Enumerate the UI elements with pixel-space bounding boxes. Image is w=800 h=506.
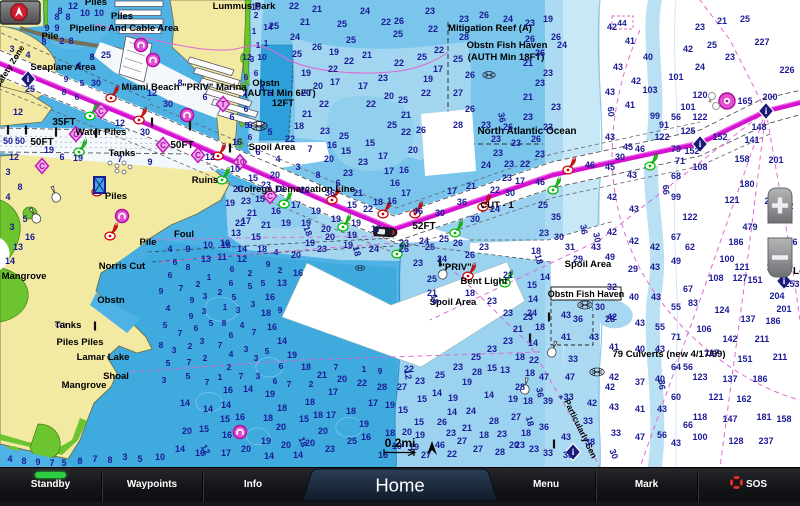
svg-text:17: 17 [368, 398, 378, 408]
svg-text:18: 18 [294, 121, 304, 131]
svg-text:4: 4 [167, 244, 172, 254]
svg-text:24: 24 [360, 6, 370, 16]
svg-text:22: 22 [434, 45, 444, 55]
svg-text:23: 23 [425, 6, 435, 16]
svg-text:9: 9 [44, 23, 49, 33]
svg-text:1: 1 [218, 372, 223, 382]
svg-text:16: 16 [267, 322, 277, 332]
svg-text:8: 8 [159, 340, 164, 350]
svg-text:23: 23 [523, 312, 533, 322]
svg-text:68: 68 [671, 171, 681, 181]
svg-text:20: 20 [408, 145, 418, 155]
svg-text:42: 42 [607, 22, 617, 32]
svg-text:42: 42 [607, 227, 617, 237]
svg-text:5: 5 [163, 320, 168, 330]
svg-text:23: 23 [459, 14, 469, 24]
svg-text:32: 32 [607, 282, 617, 292]
svg-text:20: 20 [321, 224, 331, 234]
svg-text:60: 60 [606, 106, 617, 117]
svg-text:123: 123 [692, 372, 707, 382]
svg-text:118: 118 [693, 412, 708, 422]
svg-text:14: 14 [180, 398, 190, 408]
svg-text:46: 46 [635, 144, 645, 154]
svg-text:121: 121 [724, 195, 739, 205]
svg-text:14: 14 [221, 400, 231, 410]
svg-text:99: 99 [650, 111, 660, 121]
svg-text:50: 50 [15, 136, 25, 146]
svg-text:186: 186 [728, 237, 743, 247]
svg-text:16: 16 [232, 137, 242, 147]
svg-text:28: 28 [377, 382, 387, 392]
svg-text:6: 6 [260, 82, 265, 92]
svg-text:8: 8 [90, 52, 95, 62]
svg-text:19: 19 [415, 430, 425, 440]
svg-text:14: 14 [528, 294, 538, 304]
svg-text:42: 42 [605, 382, 615, 392]
svg-text:23: 23 [320, 126, 330, 136]
svg-text:186: 186 [752, 374, 767, 384]
svg-text:28: 28 [472, 367, 482, 377]
svg-text:5: 5 [137, 454, 142, 464]
svg-text:8: 8 [62, 87, 67, 97]
svg-text:122: 122 [682, 212, 697, 222]
svg-text:22: 22 [447, 449, 457, 459]
svg-text:5: 5 [245, 120, 250, 130]
svg-text:5: 5 [261, 278, 266, 288]
svg-text:40: 40 [643, 52, 653, 62]
svg-text:42: 42 [650, 242, 660, 252]
svg-text:12: 12 [147, 88, 157, 98]
svg-text:7: 7 [179, 283, 184, 293]
svg-text:12: 12 [13, 107, 23, 117]
svg-text:Piles: Piles [85, 0, 107, 8]
svg-text:19: 19 [44, 145, 54, 155]
svg-text:27: 27 [473, 444, 483, 454]
svg-text:C: C [160, 141, 166, 150]
svg-text:15: 15 [347, 200, 357, 210]
svg-text:8: 8 [177, 78, 182, 88]
svg-text:22: 22 [357, 378, 367, 388]
svg-text:17: 17 [328, 387, 338, 397]
svg-text:49: 49 [671, 256, 681, 266]
svg-text:4: 4 [240, 320, 245, 330]
svg-text:16: 16 [223, 385, 233, 395]
svg-text:12: 12 [237, 254, 247, 264]
svg-text:5: 5 [61, 458, 66, 467]
svg-text:4: 4 [229, 349, 234, 359]
svg-text:43: 43 [655, 344, 665, 354]
svg-text:21: 21 [466, 181, 476, 191]
svg-text:23: 23 [535, 149, 545, 159]
svg-text:3: 3 [202, 306, 207, 316]
svg-text:Pile: Pile [140, 237, 157, 248]
svg-text:18: 18 [346, 406, 356, 416]
svg-text:20: 20 [241, 444, 251, 454]
svg-text:23: 23 [415, 376, 425, 386]
svg-text:25: 25 [439, 234, 449, 244]
svg-text:2: 2 [218, 287, 223, 297]
svg-text:14: 14 [447, 407, 457, 417]
svg-text:23: 23 [504, 159, 514, 169]
svg-text:28: 28 [495, 447, 505, 457]
svg-text:31: 31 [565, 242, 575, 252]
svg-text:Mangrove: Mangrove [2, 271, 47, 282]
svg-text:Tanks: Tanks [55, 320, 82, 331]
svg-text:20: 20 [233, 184, 243, 194]
svg-text:43: 43 [561, 310, 571, 320]
svg-text:26: 26 [465, 250, 475, 260]
svg-text:25: 25 [471, 352, 481, 362]
svg-text:23: 23 [358, 157, 368, 167]
svg-text:43: 43 [613, 62, 623, 72]
svg-text:19: 19 [225, 198, 235, 208]
svg-text:201: 201 [776, 304, 791, 314]
svg-text:21: 21 [353, 188, 363, 198]
svg-text:23: 23 [446, 428, 456, 438]
svg-text:120: 120 [692, 90, 707, 100]
svg-text:8: 8 [17, 182, 22, 192]
svg-text:152: 152 [712, 132, 727, 142]
svg-text:9: 9 [190, 295, 195, 305]
svg-text:12: 12 [242, 52, 252, 62]
svg-text:35FT: 35FT [52, 117, 75, 128]
svg-text:12: 12 [205, 152, 215, 162]
svg-text:28: 28 [605, 314, 615, 324]
svg-text:37: 37 [635, 377, 645, 387]
svg-text:4: 4 [166, 303, 171, 313]
svg-text:17: 17 [447, 186, 457, 196]
svg-text:15: 15 [414, 417, 424, 427]
svg-text:30: 30 [163, 99, 173, 109]
svg-text:20: 20 [384, 91, 394, 101]
svg-text:27: 27 [453, 88, 463, 98]
svg-text:15: 15 [220, 414, 230, 424]
svg-text:Piles Piles: Piles Piles [56, 337, 103, 348]
svg-text:Norris Cut: Norris Cut [99, 261, 146, 272]
svg-text:3: 3 [251, 299, 256, 309]
svg-text:5: 5 [186, 371, 191, 381]
svg-text:6: 6 [244, 72, 249, 82]
svg-text:33: 33 [583, 416, 593, 426]
svg-text:18: 18 [515, 352, 525, 362]
svg-text:7: 7 [205, 377, 210, 387]
svg-text:16: 16 [265, 292, 275, 302]
svg-text:6: 6 [202, 92, 207, 102]
svg-text:19: 19 [385, 400, 395, 410]
svg-text:64: 64 [671, 362, 681, 372]
svg-text:9: 9 [147, 157, 152, 167]
svg-text:15: 15 [527, 280, 537, 290]
svg-text:23: 23 [487, 296, 497, 306]
svg-text:7: 7 [178, 328, 183, 338]
svg-text:6: 6 [229, 278, 234, 288]
svg-text:18: 18 [479, 430, 489, 440]
svg-text:Piles: Piles [105, 191, 127, 202]
svg-text:16: 16 [222, 430, 232, 440]
svg-text:16: 16 [235, 412, 245, 422]
svg-text:3: 3 [172, 345, 177, 355]
svg-text:26: 26 [479, 10, 489, 20]
svg-text:42: 42 [607, 192, 617, 202]
svg-text:26: 26 [312, 42, 322, 52]
svg-text:21: 21 [523, 58, 533, 68]
svg-text:Pipeline And Cable Area: Pipeline And Cable Area [69, 23, 179, 34]
svg-text:25: 25 [101, 50, 111, 60]
svg-text:5: 5 [267, 127, 272, 137]
svg-text:21: 21 [503, 270, 513, 280]
svg-text:18: 18 [373, 197, 383, 207]
svg-text:25: 25 [387, 120, 397, 130]
svg-text:26: 26 [465, 70, 475, 80]
svg-text:22: 22 [300, 185, 310, 195]
svg-text:14: 14 [243, 384, 253, 394]
svg-text:2: 2 [278, 265, 283, 275]
svg-text:20: 20 [324, 154, 334, 164]
svg-text:15: 15 [248, 173, 258, 183]
svg-text:141: 141 [744, 135, 759, 145]
svg-text:43: 43 [657, 404, 667, 414]
svg-text:41: 41 [561, 332, 571, 342]
svg-text:7: 7 [92, 454, 97, 464]
svg-text:23: 23 [535, 78, 545, 88]
svg-text:22: 22 [363, 204, 373, 214]
svg-text:8: 8 [315, 170, 320, 180]
svg-text:16: 16 [361, 432, 371, 442]
svg-text:21: 21 [717, 16, 727, 26]
svg-text:165: 165 [737, 96, 752, 106]
svg-text:26: 26 [531, 134, 541, 144]
svg-text:9: 9 [185, 244, 190, 254]
svg-text:25: 25 [435, 370, 445, 380]
svg-text:45: 45 [623, 142, 633, 152]
svg-text:13: 13 [500, 365, 510, 375]
svg-text:7: 7 [287, 379, 292, 389]
svg-text:10: 10 [80, 8, 90, 18]
svg-text:19: 19 [73, 153, 83, 163]
svg-text:55: 55 [671, 302, 681, 312]
svg-text:24: 24 [490, 204, 500, 214]
svg-text:15: 15 [417, 394, 427, 404]
svg-text:Obstn: Obstn [97, 295, 125, 306]
svg-text:18: 18 [313, 410, 323, 420]
svg-text:23: 23 [503, 308, 513, 318]
svg-text:23: 23 [539, 228, 549, 238]
svg-text:25: 25 [393, 29, 403, 39]
svg-text:43: 43 [651, 292, 661, 302]
svg-text:26: 26 [437, 417, 447, 427]
svg-text:42: 42 [683, 44, 693, 54]
svg-text:26: 26 [465, 104, 475, 114]
svg-text:151: 151 [747, 275, 762, 285]
svg-text:36: 36 [578, 224, 590, 236]
svg-text:117: 117 [705, 348, 720, 358]
svg-text:18: 18 [535, 322, 545, 332]
svg-text:26: 26 [394, 16, 404, 26]
svg-text:42: 42 [587, 398, 597, 408]
svg-text:38: 38 [585, 437, 595, 447]
svg-text:6: 6 [168, 270, 173, 280]
svg-text:151: 151 [737, 354, 752, 364]
svg-text:25: 25 [740, 14, 750, 24]
svg-text:253: 253 [784, 279, 799, 289]
svg-text:18: 18 [465, 288, 475, 298]
svg-text:T: T [221, 100, 226, 109]
svg-text:14: 14 [263, 22, 273, 32]
svg-text:20: 20 [270, 170, 280, 180]
svg-text:Home: Home [375, 475, 424, 496]
svg-text:17: 17 [358, 81, 368, 91]
svg-text:23: 23 [241, 196, 251, 206]
svg-text:23: 23 [261, 180, 271, 190]
svg-text:47: 47 [565, 372, 575, 382]
svg-text:6: 6 [194, 323, 199, 333]
svg-text:3: 3 [162, 375, 167, 385]
svg-text:23: 23 [325, 444, 335, 454]
svg-text:36: 36 [539, 422, 549, 432]
svg-text:19: 19 [301, 68, 311, 78]
svg-text:186: 186 [765, 316, 780, 326]
svg-text:Mangrove: Mangrove [62, 380, 107, 391]
svg-text:22: 22 [366, 99, 376, 109]
svg-text:19: 19 [351, 218, 361, 228]
svg-text:18: 18 [305, 397, 315, 407]
svg-text:8: 8 [21, 456, 26, 466]
svg-text:23: 23 [479, 242, 489, 252]
svg-text:17: 17 [371, 224, 381, 234]
svg-text:46: 46 [535, 177, 545, 187]
svg-text:6: 6 [229, 112, 234, 122]
svg-text:19: 19 [301, 218, 311, 228]
svg-text:14: 14 [540, 272, 550, 282]
svg-text:24: 24 [419, 236, 429, 246]
svg-text:Piles: Piles [111, 11, 133, 22]
svg-text:108: 108 [708, 273, 723, 283]
svg-text:16: 16 [195, 448, 205, 458]
svg-text:40: 40 [635, 344, 645, 354]
svg-text:3: 3 [236, 305, 241, 315]
svg-text:6: 6 [279, 361, 284, 371]
svg-text:18: 18 [301, 362, 311, 372]
svg-text:25: 25 [398, 95, 408, 105]
svg-text:43: 43 [605, 132, 615, 142]
svg-text:23: 23 [453, 362, 463, 372]
svg-text:25: 25 [427, 274, 437, 284]
svg-text:137: 137 [740, 314, 755, 324]
svg-text:27: 27 [511, 412, 521, 422]
svg-text:19: 19 [265, 389, 275, 399]
svg-text:25: 25 [292, 49, 302, 59]
svg-text:41: 41 [609, 342, 619, 352]
svg-text:100: 100 [692, 432, 707, 442]
svg-text:5: 5 [265, 346, 270, 356]
svg-text:24: 24 [466, 406, 476, 416]
svg-text:9: 9 [189, 311, 194, 321]
svg-text:19: 19 [261, 436, 271, 446]
svg-text:33: 33 [543, 448, 553, 458]
svg-text:479: 479 [742, 222, 757, 232]
svg-text:41: 41 [625, 100, 635, 110]
svg-text:25: 25 [347, 436, 357, 446]
svg-text:25: 25 [337, 19, 347, 29]
svg-text:124: 124 [714, 305, 729, 315]
svg-text:2: 2 [188, 341, 193, 351]
svg-text:47: 47 [539, 372, 549, 382]
svg-text:6: 6 [75, 92, 80, 102]
svg-text:19: 19 [359, 419, 369, 429]
svg-text:1: 1 [207, 272, 212, 282]
svg-text:Ruins: Ruins [192, 175, 218, 186]
svg-text:19: 19 [462, 377, 472, 387]
svg-text:22: 22 [520, 159, 530, 169]
svg-text:79: 79 [671, 144, 681, 154]
svg-text:18: 18 [525, 368, 535, 378]
svg-text:21: 21 [302, 109, 312, 119]
svg-text:56: 56 [683, 362, 693, 372]
svg-text:Lamar Lake: Lamar Lake [77, 352, 130, 363]
svg-text:20: 20 [305, 438, 315, 448]
svg-text:46: 46 [435, 440, 445, 450]
svg-text:+33: +33 [558, 392, 573, 402]
svg-text:227: 227 [754, 37, 769, 47]
svg-text:18: 18 [261, 308, 271, 318]
svg-text:19: 19 [331, 214, 341, 224]
svg-text:17: 17 [330, 77, 340, 87]
svg-text:3: 3 [295, 162, 300, 172]
svg-text:101: 101 [680, 102, 695, 112]
svg-text:C: C [195, 151, 201, 160]
svg-text:21: 21 [362, 50, 372, 60]
svg-text:7: 7 [117, 154, 122, 164]
svg-text:40: 40 [655, 374, 665, 384]
svg-text:21: 21 [261, 220, 271, 230]
svg-text:36: 36 [573, 314, 583, 324]
svg-text:43: 43 [605, 87, 615, 97]
svg-text:24: 24 [503, 14, 513, 24]
svg-text:137: 137 [722, 374, 737, 384]
svg-text:17: 17 [326, 410, 336, 420]
svg-text:21: 21 [300, 17, 310, 27]
svg-text:41: 41 [635, 404, 645, 414]
svg-text:3: 3 [9, 222, 14, 232]
svg-text:9: 9 [35, 457, 40, 467]
svg-text:67: 67 [683, 284, 693, 294]
svg-text:15: 15 [341, 146, 351, 156]
svg-text:22: 22 [428, 24, 438, 34]
svg-text:204: 204 [769, 291, 784, 301]
svg-text:43: 43 [589, 332, 599, 342]
svg-text:6: 6 [59, 152, 64, 162]
svg-text:23: 23 [487, 344, 497, 354]
svg-text:Bent Light: Bent Light [461, 276, 509, 287]
svg-text:19: 19 [543, 14, 553, 24]
svg-text:22: 22 [381, 17, 391, 27]
svg-text:211: 211 [755, 334, 770, 344]
svg-text:16: 16 [25, 232, 35, 242]
svg-text:14: 14 [528, 338, 538, 348]
svg-text:22: 22 [344, 56, 354, 66]
svg-text:19: 19 [281, 218, 291, 228]
svg-text:62: 62 [685, 242, 695, 252]
svg-text:6: 6 [255, 147, 260, 157]
svg-text:33: 33 [611, 428, 621, 438]
svg-text:23: 23 [343, 168, 353, 178]
svg-text:Seaplane Area: Seaplane Area [30, 62, 96, 73]
svg-text:20: 20 [313, 81, 323, 91]
svg-text:13: 13 [201, 254, 211, 264]
svg-text:5: 5 [80, 78, 85, 88]
svg-text:16: 16 [399, 165, 409, 175]
svg-text:127: 127 [732, 273, 747, 283]
